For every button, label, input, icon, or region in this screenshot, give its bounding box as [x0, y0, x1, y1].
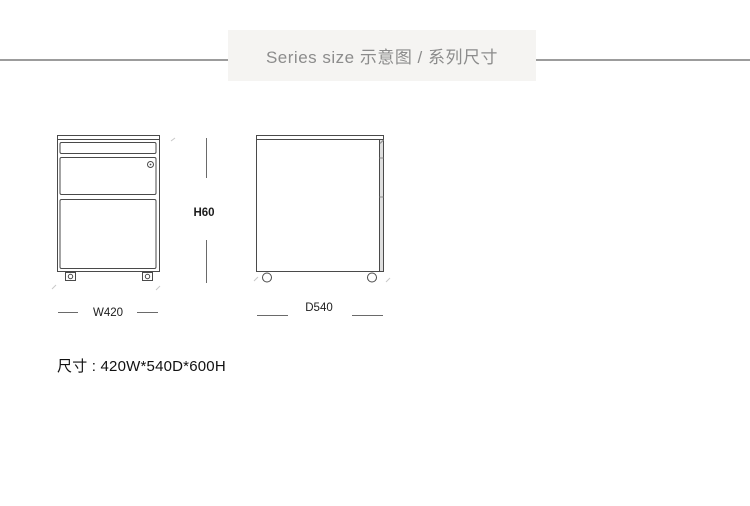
front-view [58, 136, 160, 281]
dimensions-text: 尺寸 : 420W*540D*600H [57, 357, 226, 377]
front-caster-left [66, 273, 76, 281]
front-cabinet-outline [58, 136, 160, 272]
lock-pin-icon [150, 164, 152, 166]
width-dimension-label: W420 [93, 307, 123, 319]
front-top-drawer [60, 143, 156, 154]
side-caster-right [368, 273, 377, 282]
side-caster-left [263, 273, 272, 282]
dimension-diagram: W420 H60 D540 [0, 0, 750, 506]
side-cabinet-outline [257, 136, 384, 272]
height-dimension-label: H60 [193, 207, 214, 219]
side-drawer-edge-fill [380, 140, 384, 272]
side-view [257, 136, 384, 283]
front-middle-drawer [60, 158, 156, 195]
front-bottom-drawer [60, 200, 156, 269]
front-caster-right [143, 273, 153, 281]
height-dimension: H60 [193, 138, 214, 283]
page: Series size 示意图 / 系列尺寸 [0, 0, 750, 506]
depth-dimension-label: D540 [305, 302, 333, 314]
width-dimension: W420 [58, 307, 158, 319]
dimension-ticks [52, 138, 390, 290]
depth-dimension: D540 [257, 302, 383, 316]
